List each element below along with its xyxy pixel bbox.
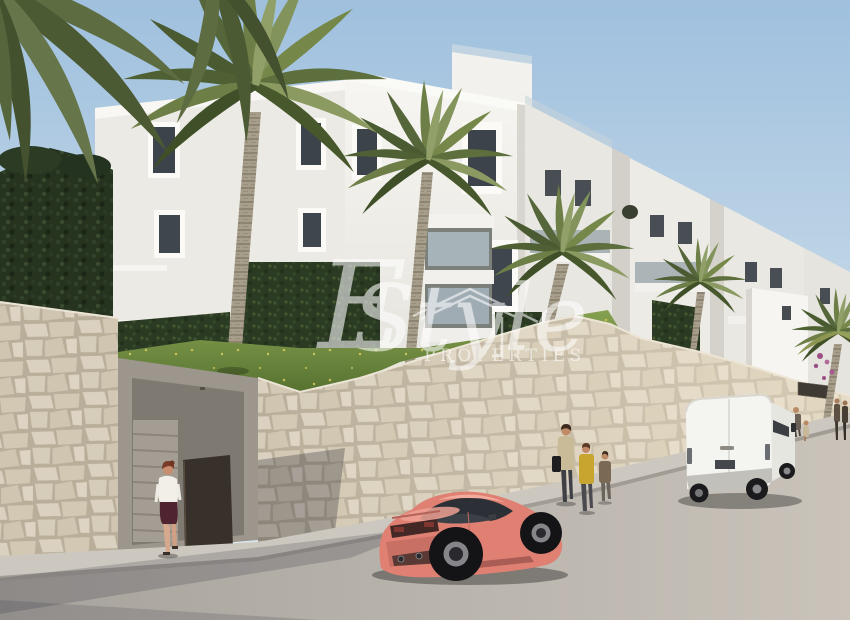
watermark-subtitle: PROPERTIES [424,346,586,366]
roof-shrub [622,205,638,219]
van-taillight [765,444,770,460]
car-mirror [488,514,496,520]
van-license-plate [715,460,735,469]
van-taillight [687,448,692,464]
entrance [118,358,258,553]
car-exhaust [398,556,404,562]
wall-left-section [0,302,118,560]
car-exhaust [416,553,422,559]
render-canvas: E Style PROPERTIES [0,0,850,620]
van-mirror [791,423,796,432]
property-exterior-render: E Style PROPERTIES [0,0,850,620]
van-handle [720,446,734,450]
wall-shadow [258,448,345,542]
entrance-door [183,455,233,553]
wall-lamp [200,387,205,390]
